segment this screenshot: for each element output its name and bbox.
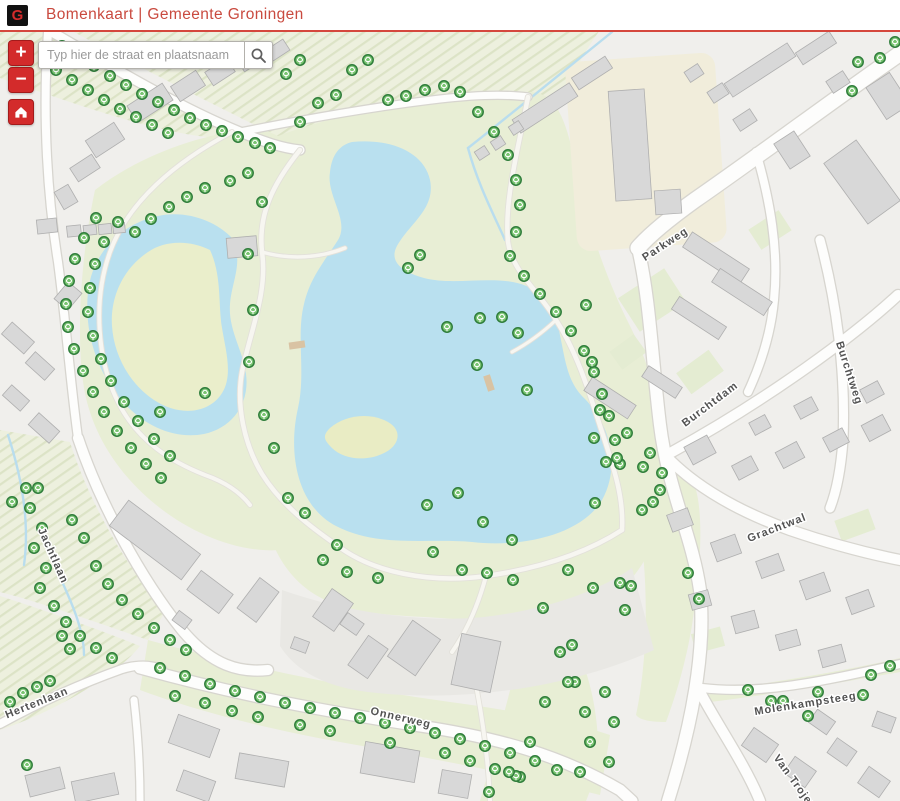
tree-marker[interactable] — [484, 787, 494, 797]
tree-marker[interactable] — [265, 143, 275, 153]
tree-marker[interactable] — [472, 360, 482, 370]
tree-marker[interactable] — [604, 757, 614, 767]
tree-marker[interactable] — [200, 183, 210, 193]
tree-marker[interactable] — [70, 254, 80, 264]
tree-marker[interactable] — [283, 493, 293, 503]
tree-marker[interactable] — [538, 603, 548, 613]
tree-marker[interactable] — [478, 517, 488, 527]
tree-marker[interactable] — [75, 631, 85, 641]
tree-marker[interactable] — [180, 671, 190, 681]
tree-marker[interactable] — [637, 505, 647, 515]
tree-marker[interactable] — [83, 85, 93, 95]
tree-marker[interactable] — [601, 457, 611, 467]
tree-marker[interactable] — [587, 357, 597, 367]
zoom-in-button[interactable]: + — [8, 40, 34, 66]
tree-marker[interactable] — [227, 706, 237, 716]
tree-marker[interactable] — [597, 389, 607, 399]
tree-marker[interactable] — [480, 741, 490, 751]
tree-marker[interactable] — [567, 640, 577, 650]
building — [608, 89, 652, 201]
tree-marker[interactable] — [217, 126, 227, 136]
tree-marker[interactable] — [453, 488, 463, 498]
tree-marker[interactable] — [90, 259, 100, 269]
tree-marker[interactable] — [440, 748, 450, 758]
tree-marker[interactable] — [99, 407, 109, 417]
tree-marker[interactable] — [504, 767, 514, 777]
tree-marker[interactable] — [858, 690, 868, 700]
tree-marker[interactable] — [88, 387, 98, 397]
tree-marker[interactable] — [200, 698, 210, 708]
tree-marker[interactable] — [363, 55, 373, 65]
tree-marker[interactable] — [519, 271, 529, 281]
tree-marker[interactable] — [505, 251, 515, 261]
tree-marker[interactable] — [146, 214, 156, 224]
tree-marker[interactable] — [250, 138, 260, 148]
tree-marker[interactable] — [645, 448, 655, 458]
tree-marker[interactable] — [103, 579, 113, 589]
tree-marker[interactable] — [497, 312, 507, 322]
tree-marker[interactable] — [67, 75, 77, 85]
tree-marker[interactable] — [182, 192, 192, 202]
tree-marker[interactable] — [106, 376, 116, 386]
tree-marker[interactable] — [535, 289, 545, 299]
tree-marker[interactable] — [300, 508, 310, 518]
search-input[interactable] — [38, 41, 244, 69]
tree-marker[interactable] — [147, 120, 157, 130]
tree-marker[interactable] — [595, 405, 605, 415]
tree-marker[interactable] — [280, 698, 290, 708]
tree-marker[interactable] — [430, 728, 440, 738]
tree-marker[interactable] — [566, 326, 576, 336]
tree-marker[interactable] — [165, 451, 175, 461]
tree-marker[interactable] — [255, 692, 265, 702]
tree-marker[interactable] — [121, 80, 131, 90]
tree-marker[interactable] — [259, 410, 269, 420]
tree-marker[interactable] — [69, 344, 79, 354]
tree-marker[interactable] — [612, 453, 622, 463]
tree-marker[interactable] — [164, 202, 174, 212]
tree-marker[interactable] — [141, 459, 151, 469]
tree-marker[interactable] — [185, 113, 195, 123]
tree-marker[interactable] — [330, 708, 340, 718]
tree-marker[interactable] — [295, 720, 305, 730]
tree-marker[interactable] — [169, 105, 179, 115]
tree-marker[interactable] — [107, 653, 117, 663]
tree-marker[interactable] — [655, 485, 665, 495]
tree-marker[interactable] — [455, 734, 465, 744]
tree-marker[interactable] — [373, 573, 383, 583]
tree-marker[interactable] — [439, 81, 449, 91]
tree-marker[interactable] — [113, 217, 123, 227]
tree-marker[interactable] — [105, 71, 115, 81]
tree-marker[interactable] — [332, 540, 342, 550]
tree-marker[interactable] — [130, 227, 140, 237]
app-header: G Bomenkaart | Gemeente Groningen — [0, 0, 900, 32]
tree-marker[interactable] — [342, 567, 352, 577]
tree-marker[interactable] — [126, 443, 136, 453]
tree-marker[interactable] — [170, 691, 180, 701]
tree-marker[interactable] — [473, 107, 483, 117]
tree-marker[interactable] — [85, 283, 95, 293]
tree-marker[interactable] — [331, 90, 341, 100]
tree-marker[interactable] — [457, 565, 467, 575]
tree-marker[interactable] — [525, 737, 535, 747]
tree-marker[interactable] — [465, 756, 475, 766]
tree-marker[interactable] — [200, 388, 210, 398]
tree-marker[interactable] — [588, 583, 598, 593]
tree-marker[interactable] — [866, 670, 876, 680]
tree-marker[interactable] — [248, 305, 258, 315]
tree-marker[interactable] — [133, 416, 143, 426]
tree-marker[interactable] — [508, 575, 518, 585]
tree-marker[interactable] — [45, 676, 55, 686]
tree-marker[interactable] — [511, 227, 521, 237]
tree-marker[interactable] — [22, 760, 32, 770]
tree-marker[interactable] — [133, 609, 143, 619]
tree-marker[interactable] — [7, 497, 17, 507]
tree-marker[interactable] — [648, 497, 658, 507]
tree-marker[interactable] — [590, 498, 600, 508]
tree-marker[interactable] — [694, 594, 704, 604]
tree-marker[interactable] — [61, 299, 71, 309]
tree-marker[interactable] — [626, 581, 636, 591]
tree-marker[interactable] — [25, 503, 35, 513]
tree-marker[interactable] — [65, 644, 75, 654]
tree-marker[interactable] — [847, 86, 857, 96]
tree-marker[interactable] — [743, 685, 753, 695]
tree-marker[interactable] — [79, 533, 89, 543]
search-icon — [250, 47, 267, 64]
tree-marker[interactable] — [117, 595, 127, 605]
tree-marker[interactable] — [551, 307, 561, 317]
tree-marker[interactable] — [890, 37, 900, 47]
tree-marker[interactable] — [257, 197, 267, 207]
home-icon — [13, 104, 29, 120]
tree-marker[interactable] — [295, 117, 305, 127]
tree-marker[interactable] — [99, 95, 109, 105]
tree-marker[interactable] — [41, 563, 51, 573]
tree-marker[interactable] — [540, 697, 550, 707]
tree-marker[interactable] — [638, 462, 648, 472]
building — [98, 223, 112, 234]
tree-marker[interactable] — [325, 726, 335, 736]
tree-marker[interactable] — [428, 547, 438, 557]
tree-marker[interactable] — [420, 85, 430, 95]
tree-marker[interactable] — [96, 354, 106, 364]
tree-marker[interactable] — [490, 764, 500, 774]
tree-marker[interactable] — [57, 631, 67, 641]
home-button[interactable] — [8, 99, 34, 125]
tree-marker[interactable] — [61, 617, 71, 627]
tree-marker[interactable] — [415, 250, 425, 260]
tree-marker[interactable] — [609, 717, 619, 727]
tree-marker[interactable] — [589, 367, 599, 377]
tree-marker[interactable] — [552, 765, 562, 775]
tree-marker[interactable] — [555, 647, 565, 657]
tree-marker[interactable] — [507, 535, 517, 545]
tree-marker[interactable] — [589, 433, 599, 443]
tree-marker[interactable] — [163, 128, 173, 138]
building — [438, 770, 472, 799]
gemeente-groningen-logo: G — [7, 5, 28, 26]
tree-marker[interactable] — [563, 565, 573, 575]
tree-marker[interactable] — [683, 568, 693, 578]
tree-marker[interactable] — [585, 737, 595, 747]
tree-marker[interactable] — [615, 578, 625, 588]
tree-marker[interactable] — [91, 643, 101, 653]
tree-marker[interactable] — [853, 57, 863, 67]
tree-marker[interactable] — [64, 276, 74, 286]
tree-marker[interactable] — [515, 200, 525, 210]
tree-marker[interactable] — [91, 213, 101, 223]
tree-marker[interactable] — [149, 623, 159, 633]
tree-marker[interactable] — [505, 748, 515, 758]
tree-marker[interactable] — [83, 307, 93, 317]
tree-marker[interactable] — [115, 104, 125, 114]
tree-marker[interactable] — [29, 543, 39, 553]
tree-marker[interactable] — [225, 176, 235, 186]
tree-marker[interactable] — [99, 237, 109, 247]
tree-marker[interactable] — [131, 112, 141, 122]
tree-marker[interactable] — [620, 605, 630, 615]
tree-marker[interactable] — [875, 53, 885, 63]
tree-marker[interactable] — [78, 366, 88, 376]
tree-marker[interactable] — [230, 686, 240, 696]
tree-marker[interactable] — [575, 767, 585, 777]
tree-marker[interactable] — [295, 55, 305, 65]
tree-marker[interactable] — [442, 322, 452, 332]
search-button[interactable] — [244, 41, 273, 69]
tree-marker[interactable] — [281, 69, 291, 79]
tree-marker[interactable] — [305, 703, 315, 713]
search-bar — [38, 41, 273, 69]
tree-marker[interactable] — [385, 738, 395, 748]
tree-marker[interactable] — [489, 127, 499, 137]
tree-marker[interactable] — [581, 300, 591, 310]
tree-marker[interactable] — [610, 435, 620, 445]
tree-marker[interactable] — [530, 756, 540, 766]
tree-marker[interactable] — [475, 313, 485, 323]
tree-marker[interactable] — [137, 89, 147, 99]
tree-marker[interactable] — [79, 233, 89, 243]
tree-marker[interactable] — [32, 682, 42, 692]
tree-marker[interactable] — [347, 65, 357, 75]
tree-marker[interactable] — [155, 663, 165, 673]
building — [36, 218, 57, 234]
tree-marker[interactable] — [422, 500, 432, 510]
tree-marker[interactable] — [244, 357, 254, 367]
tree-marker[interactable] — [155, 407, 165, 417]
tree-marker[interactable] — [579, 346, 589, 356]
tree-marker[interactable] — [885, 661, 895, 671]
tree-marker[interactable] — [403, 263, 413, 273]
tree-marker[interactable] — [233, 132, 243, 142]
tree-marker[interactable] — [63, 322, 73, 332]
tree-marker[interactable] — [205, 679, 215, 689]
tree-marker[interactable] — [243, 249, 253, 259]
tree-marker[interactable] — [149, 434, 159, 444]
tree-marker[interactable] — [153, 97, 163, 107]
page-title: Bomenkaart | Gemeente Groningen — [46, 6, 304, 24]
tree-marker[interactable] — [482, 568, 492, 578]
map-svg[interactable]: ParkwegBurchtdamBurchtwegGrachtwalJachtl… — [0, 0, 900, 801]
tree-marker[interactable] — [49, 601, 59, 611]
tree-marker[interactable] — [67, 515, 77, 525]
tree-marker[interactable] — [119, 397, 129, 407]
tree-marker[interactable] — [401, 91, 411, 101]
tree-marker[interactable] — [803, 711, 813, 721]
tree-marker[interactable] — [563, 677, 573, 687]
tree-marker[interactable] — [112, 426, 122, 436]
tree-marker[interactable] — [269, 443, 279, 453]
map-canvas[interactable]: ParkwegBurchtdamBurchtwegGrachtwalJachtl… — [0, 0, 900, 801]
tree-marker[interactable] — [580, 707, 590, 717]
tree-marker[interactable] — [35, 583, 45, 593]
tree-marker[interactable] — [355, 713, 365, 723]
tree-marker[interactable] — [503, 150, 513, 160]
tree-marker[interactable] — [88, 331, 98, 341]
tree-marker[interactable] — [156, 473, 166, 483]
tree-marker[interactable] — [522, 385, 532, 395]
tree-marker[interactable] — [318, 555, 328, 565]
tree-marker[interactable] — [513, 328, 523, 338]
tree-marker[interactable] — [383, 95, 393, 105]
tree-marker[interactable] — [181, 645, 191, 655]
building — [654, 189, 682, 215]
zoom-out-button[interactable]: − — [8, 67, 34, 93]
tree-marker[interactable] — [313, 98, 323, 108]
tree-marker[interactable] — [18, 688, 28, 698]
tree-marker[interactable] — [91, 561, 101, 571]
tree-marker[interactable] — [622, 428, 632, 438]
tree-marker[interactable] — [253, 712, 263, 722]
tree-marker[interactable] — [243, 168, 253, 178]
tree-marker[interactable] — [165, 635, 175, 645]
tree-marker[interactable] — [21, 483, 31, 493]
tree-marker[interactable] — [657, 468, 667, 478]
tree-marker[interactable] — [33, 483, 43, 493]
tree-marker[interactable] — [511, 175, 521, 185]
tree-marker[interactable] — [455, 87, 465, 97]
tree-marker[interactable] — [201, 120, 211, 130]
tree-marker[interactable] — [600, 687, 610, 697]
